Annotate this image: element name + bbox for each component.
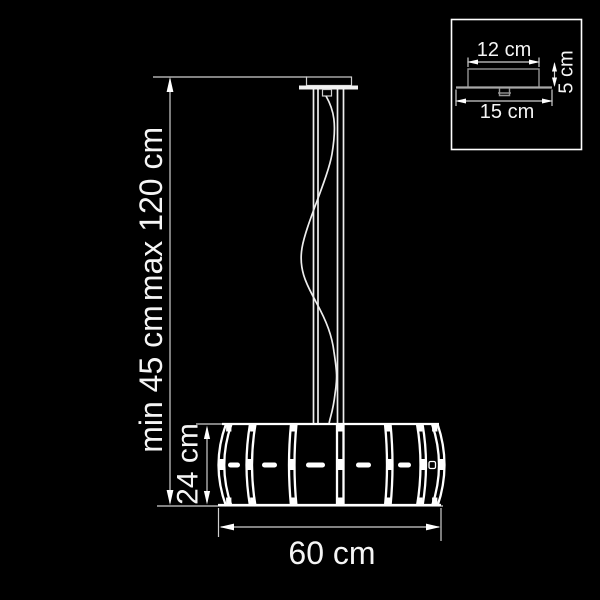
pendant-lamp-dimension-diagram: max 120 cm min 45 cm 24 cm [0,0,600,600]
canopy-body [307,77,352,86]
height-arrow-up [167,77,174,92]
lampshade [218,424,445,506]
dim-label-shade-width: 60 cm [288,535,375,571]
canopy-detail-inset: 12 cm 15 cm 5 cm [452,20,582,150]
inset-canopy-width-dimension: 12 cm [467,39,540,67]
inset-canopy-height-dimension: 5 cm [552,50,578,93]
diagram-canvas: max 120 cm min 45 cm 24 cm [0,0,600,600]
dim-label-canopy-width: 12 cm [477,39,531,61]
inset-cable-gland [498,88,511,96]
shade-height-arrow-down [204,491,210,505]
canopy [299,77,358,96]
dim-label-shade-height: 24 cm [172,423,205,505]
shade-slot-edge [429,462,436,469]
dim-label-max-drop: max 120 cm [133,127,169,301]
height-dimension: max 120 cm min 45 cm [133,77,173,505]
shade-width-dimension: 60 cm [219,508,442,571]
dim-label-min-drop: min 45 cm [133,305,169,453]
inset-base-width-dimension: 15 cm [455,90,553,124]
shade-slots [228,462,436,469]
shade-slat [295,424,297,506]
dim-label-canopy-height: 5 cm [556,50,578,93]
dim-label-base-width: 15 cm [480,101,534,123]
width-arrow-right [426,524,441,531]
shade-slat [252,424,256,506]
slat-tabs-top [226,425,437,432]
suspension-rods [314,90,344,425]
shade-height-arrow-up [204,426,210,440]
shade-slat [385,424,387,506]
cable-connector [323,90,332,97]
width-arrow-left [220,524,235,531]
inset-canopy-body [468,69,539,88]
power-cable [301,96,336,424]
shade-slat [417,424,421,506]
